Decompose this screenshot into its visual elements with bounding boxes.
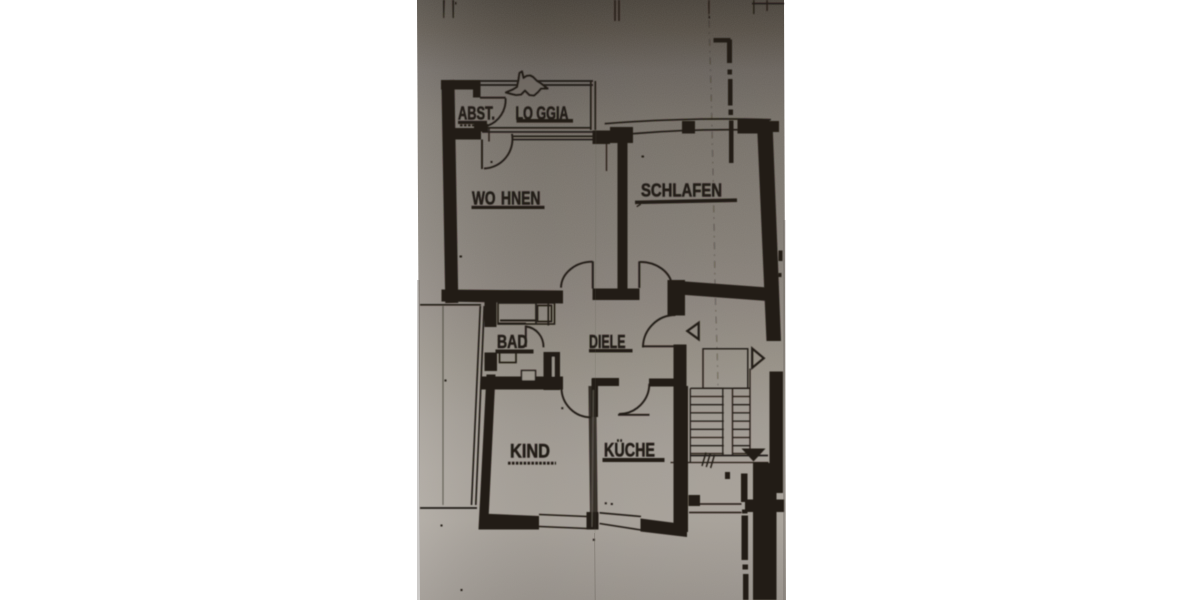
svg-text:KIND: KIND bbox=[510, 442, 550, 463]
svg-text:WO: WO bbox=[472, 188, 496, 209]
svg-text:ABST.: ABST. bbox=[458, 104, 495, 124]
svg-text:SCHLAFEN: SCHLAFEN bbox=[641, 180, 722, 201]
svg-text:BAD: BAD bbox=[497, 332, 528, 352]
svg-text:HNEN: HNEN bbox=[501, 188, 541, 209]
